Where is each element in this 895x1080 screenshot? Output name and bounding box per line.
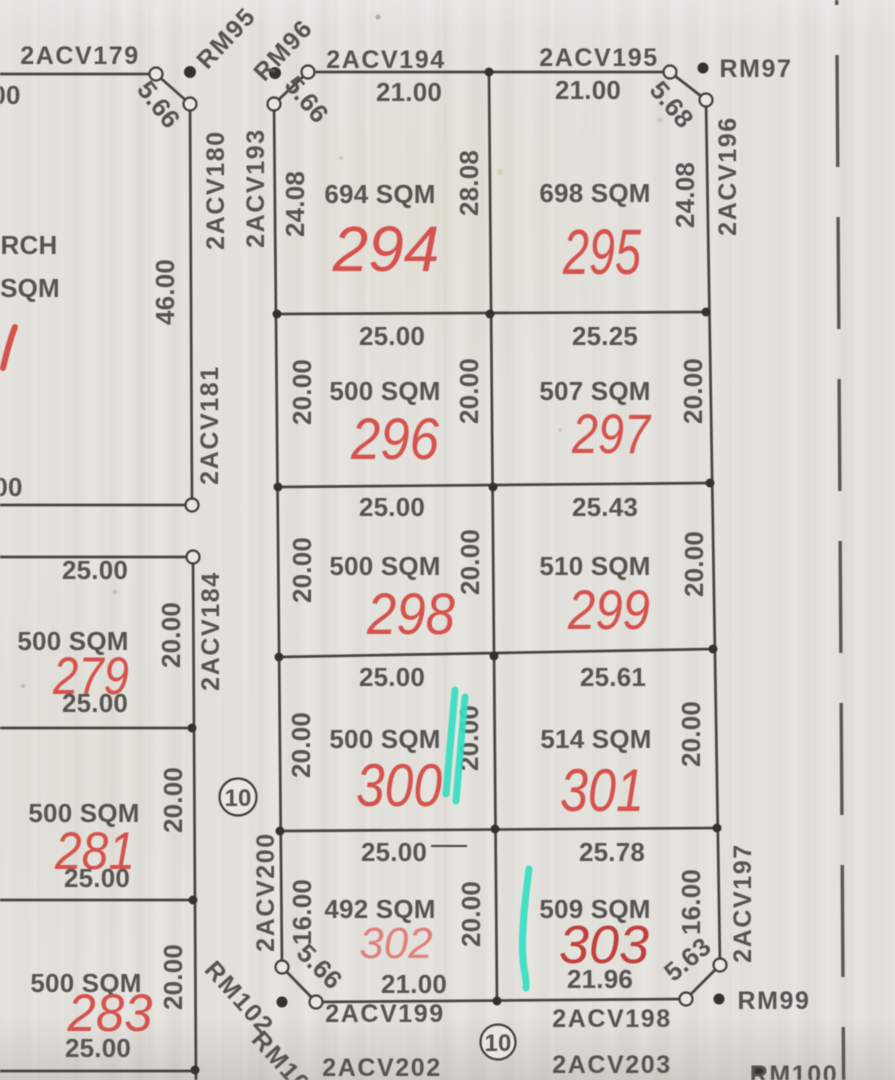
svg-text:10: 10 bbox=[484, 1030, 511, 1057]
svg-text:298: 298 bbox=[366, 582, 455, 647]
svg-text:25.00: 25.00 bbox=[62, 555, 128, 585]
svg-text:RCH: RCH bbox=[1, 230, 58, 260]
svg-text:RM99: RM99 bbox=[737, 987, 810, 1015]
svg-text:20.00: 20.00 bbox=[454, 358, 484, 424]
svg-text:295: 295 bbox=[562, 216, 641, 288]
svg-text:10: 10 bbox=[224, 785, 251, 812]
svg-text:21.96: 21.96 bbox=[567, 964, 633, 994]
svg-text:297: 297 bbox=[571, 402, 651, 465]
svg-text:2ACV181: 2ACV181 bbox=[196, 365, 224, 485]
svg-text:2ACV203: 2ACV203 bbox=[552, 1051, 672, 1079]
svg-text:25.00: 25.00 bbox=[359, 492, 425, 522]
svg-text:SQM: SQM bbox=[0, 273, 60, 303]
svg-text:20.00: 20.00 bbox=[158, 767, 188, 833]
svg-text:5.68: 5.68 bbox=[644, 75, 700, 134]
svg-text:20.00: 20.00 bbox=[456, 881, 486, 947]
svg-text:2ACV180: 2ACV180 bbox=[202, 130, 230, 250]
svg-text:RM101: RM101 bbox=[246, 1026, 326, 1080]
svg-text:2ACV195: 2ACV195 bbox=[539, 44, 659, 72]
svg-text:00: 00 bbox=[0, 472, 23, 502]
svg-text:20.00: 20.00 bbox=[158, 944, 188, 1010]
svg-text:25.00: 25.00 bbox=[361, 837, 427, 867]
svg-text:299: 299 bbox=[567, 578, 650, 641]
svg-text:20.00: 20.00 bbox=[287, 359, 317, 425]
svg-text:21.00: 21.00 bbox=[376, 77, 442, 107]
svg-text:2ACV193: 2ACV193 bbox=[242, 128, 270, 248]
svg-text:21.00: 21.00 bbox=[555, 75, 621, 105]
svg-text:20.00: 20.00 bbox=[676, 701, 706, 767]
svg-text:5.66: 5.66 bbox=[131, 75, 186, 134]
svg-text:2ACV197: 2ACV197 bbox=[729, 843, 757, 963]
svg-text:21.00: 21.00 bbox=[381, 969, 447, 999]
svg-text:302: 302 bbox=[359, 919, 432, 968]
svg-text:24.08: 24.08 bbox=[280, 171, 310, 237]
svg-text:500 SQM: 500 SQM bbox=[329, 551, 440, 581]
svg-text:16.00: 16.00 bbox=[676, 869, 706, 935]
svg-text:28.08: 28.08 bbox=[454, 150, 484, 216]
svg-text:25.00: 25.00 bbox=[359, 321, 425, 351]
svg-text:296: 296 bbox=[350, 407, 440, 472]
svg-text:2ACV194: 2ACV194 bbox=[326, 46, 446, 74]
svg-text:RM97: RM97 bbox=[719, 55, 792, 83]
svg-text:2ACV196: 2ACV196 bbox=[714, 116, 742, 236]
svg-text:500 SQM: 500 SQM bbox=[329, 724, 440, 754]
svg-text:00: 00 bbox=[0, 80, 21, 110]
svg-text:25.00: 25.00 bbox=[65, 1033, 131, 1063]
svg-text:20.00: 20.00 bbox=[455, 529, 485, 595]
svg-text:694 SQM: 694 SQM bbox=[324, 179, 435, 209]
svg-text:25.78: 25.78 bbox=[579, 837, 645, 867]
svg-text:20.00: 20.00 bbox=[678, 358, 708, 424]
svg-text:20.00: 20.00 bbox=[286, 712, 316, 778]
svg-text:24.08: 24.08 bbox=[670, 162, 700, 228]
svg-text:20.00: 20.00 bbox=[156, 602, 186, 668]
svg-text:300: 300 bbox=[356, 752, 442, 819]
svg-text:RM100: RM100 bbox=[750, 1061, 839, 1080]
svg-text:2ACV198: 2ACV198 bbox=[552, 1005, 672, 1033]
svg-text:698 SQM: 698 SQM bbox=[539, 178, 650, 208]
svg-text:25.43: 25.43 bbox=[572, 492, 638, 522]
svg-text:301: 301 bbox=[560, 757, 644, 824]
svg-text:25.25: 25.25 bbox=[572, 321, 638, 351]
svg-text:2ACV202: 2ACV202 bbox=[322, 1054, 442, 1080]
svg-text:500 SQM: 500 SQM bbox=[329, 376, 440, 406]
svg-text:5.66: 5.66 bbox=[279, 70, 335, 129]
svg-text:16.00: 16.00 bbox=[287, 879, 317, 945]
svg-text:20.00: 20.00 bbox=[679, 531, 709, 597]
svg-text:25.61: 25.61 bbox=[580, 662, 646, 692]
svg-text:20.00: 20.00 bbox=[287, 537, 317, 603]
svg-text:294: 294 bbox=[332, 213, 440, 285]
svg-text:2ACV199: 2ACV199 bbox=[325, 1000, 445, 1028]
svg-text:2ACV184: 2ACV184 bbox=[197, 571, 225, 691]
svg-text:25.00: 25.00 bbox=[64, 863, 130, 893]
svg-text:46.00: 46.00 bbox=[150, 259, 180, 325]
svg-text:2ACV179: 2ACV179 bbox=[20, 42, 140, 70]
svg-text:510 SQM: 510 SQM bbox=[539, 551, 650, 581]
svg-text:25.00: 25.00 bbox=[359, 662, 425, 692]
svg-text:514 SQM: 514 SQM bbox=[540, 724, 651, 754]
svg-text:25.00: 25.00 bbox=[62, 688, 128, 718]
svg-text:2ACV200: 2ACV200 bbox=[252, 832, 280, 952]
